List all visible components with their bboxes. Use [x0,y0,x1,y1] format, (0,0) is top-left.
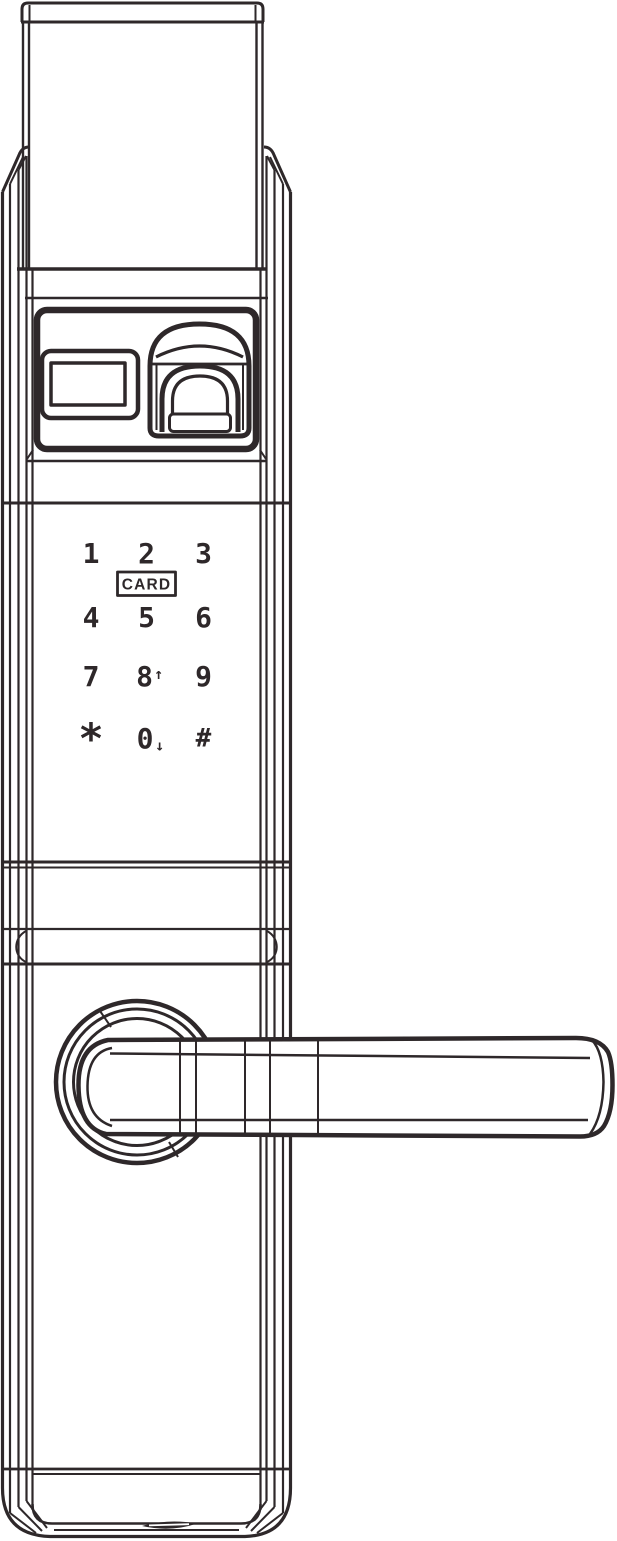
down-arrow-icon: ↓ [155,737,164,755]
key-hash[interactable]: # [196,724,212,754]
key-7[interactable]: 7 [83,660,100,693]
fingerprint-base-plate [170,414,231,432]
key-5[interactable]: 5 [138,601,155,634]
door-lock-drawing: CARD 1 2 3 4 5 6 7 8 ↑ 9 * 0 ↓ # [0,0,617,1541]
top-left-chamfer [3,147,30,192]
keypad: CARD 1 2 3 4 5 6 7 8 ↑ 9 * 0 ↓ # [78,537,212,763]
fingerprint-cover-arc [156,346,243,357]
door-handle[interactable] [56,1001,613,1163]
key-star[interactable]: * [78,714,103,763]
key-0[interactable]: 0 [137,722,154,755]
card-label: CARD [122,577,172,594]
key-6[interactable]: 6 [195,601,212,634]
key-1[interactable]: 1 [83,537,100,570]
top-right-chamfer [264,147,291,192]
key-3[interactable]: 3 [195,537,212,570]
display-window [42,351,138,418]
key-9[interactable]: 9 [195,660,212,693]
key-2[interactable]: 2 [138,537,155,570]
up-arrow-icon: ↑ [154,665,163,683]
key-8[interactable]: 8 [136,660,153,693]
top-mounting-bar [21,3,264,269]
fingerprint-reader[interactable] [150,324,249,436]
key-4[interactable]: 4 [83,601,100,634]
